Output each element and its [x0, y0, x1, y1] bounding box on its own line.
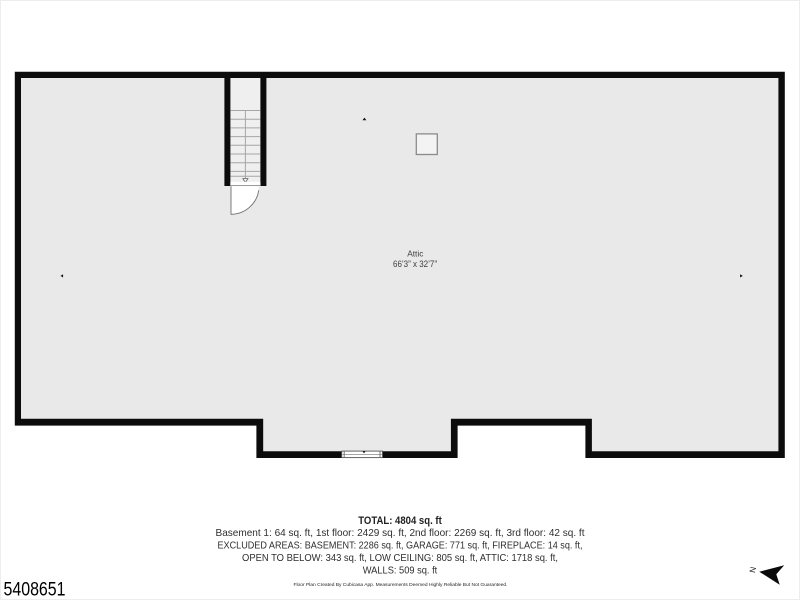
svg-text:Floor Plan Created By Cubicasa: Floor Plan Created By Cubicasa App. Meas…: [294, 582, 508, 588]
svg-text:66’3” x 32’7”: 66’3” x 32’7”: [393, 259, 437, 269]
svg-text:WALLS: 509 sq. ft: WALLS: 509 sq. ft: [363, 565, 438, 576]
svg-text:TOTAL: 4804 sq. ft: TOTAL: 4804 sq. ft: [358, 515, 442, 527]
svg-text:EXCLUDED AREAS: BASEMENT: 2286: EXCLUDED AREAS: BASEMENT: 2286 sq. ft, G…: [218, 540, 583, 551]
svg-text:5408651: 5408651: [4, 579, 66, 600]
svg-text:OPEN TO BELOW: 343 sq. ft, LOW: OPEN TO BELOW: 343 sq. ft, LOW CEILING: …: [242, 553, 558, 564]
svg-text:Basement 1: 64 sq. ft, 1st flo: Basement 1: 64 sq. ft, 1st floor: 2429 s…: [216, 528, 585, 539]
svg-text:Attic: Attic: [407, 248, 423, 258]
